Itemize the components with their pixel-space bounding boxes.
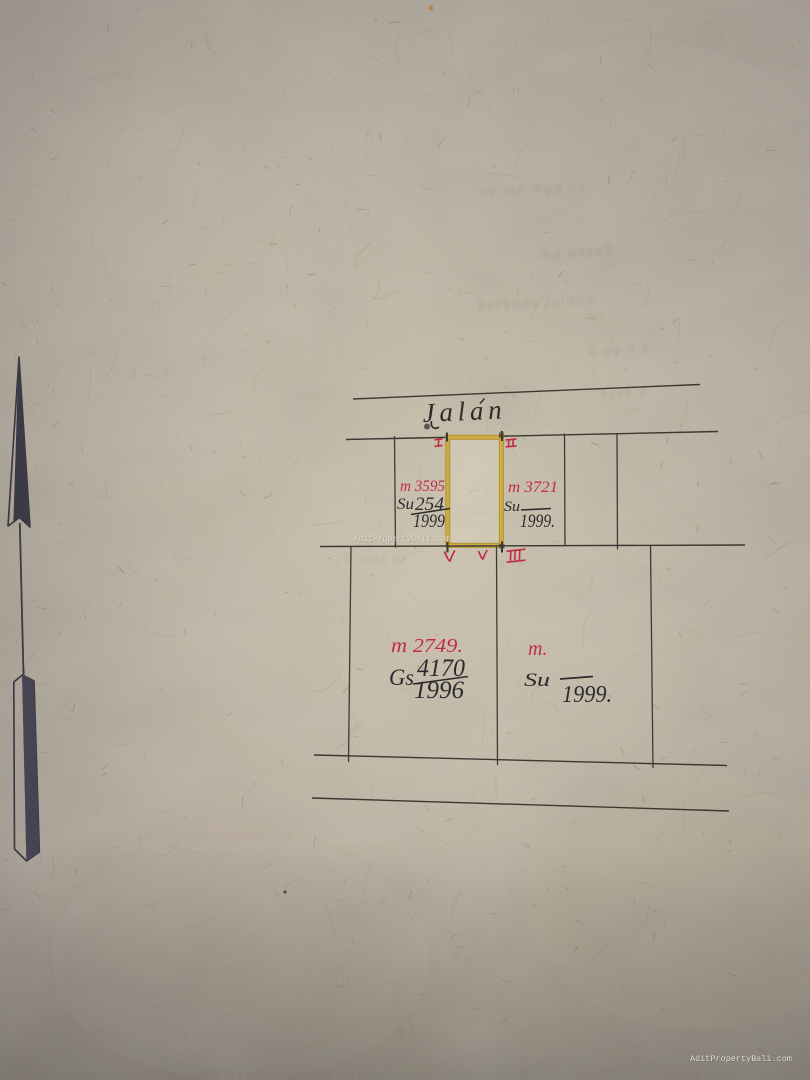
svg-text:Su: Su (524, 670, 550, 691)
svg-text:AditPropertyBali.com: AditPropertyBali.com (690, 1054, 792, 1064)
svg-text:m 3595: m 3595 (400, 478, 445, 495)
svg-text:1999: 1999 (413, 511, 445, 532)
svg-text:1999.: 1999. (520, 511, 555, 532)
svg-text:1999.: 1999. (562, 682, 612, 708)
svg-text:m.: m. (528, 638, 547, 660)
svg-text:AditPropertyBali.com: AditPropertyBali.com (354, 535, 450, 544)
svg-text:Su: Su (397, 496, 414, 513)
svg-text:m 2749.: m 2749. (391, 636, 463, 657)
svg-text:m 3721: m 3721 (508, 479, 558, 496)
svg-text:Gs: Gs (389, 665, 414, 690)
svg-text:agak 3: agak 3 (599, 384, 647, 401)
svg-text:1996: 1996 (414, 677, 465, 704)
svg-text:Su: Su (504, 499, 520, 515)
svg-text:Jalan: Jalan (422, 395, 502, 428)
